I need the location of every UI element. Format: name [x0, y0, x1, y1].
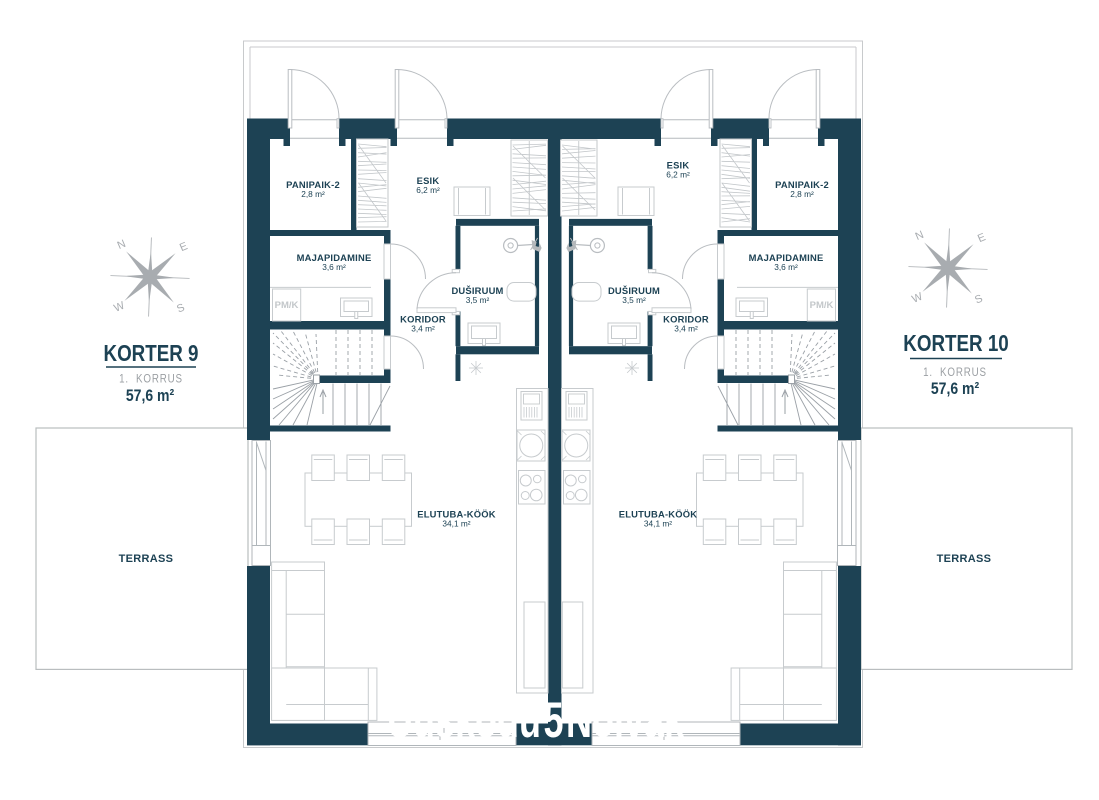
svg-text:2,8 m²: 2,8 m² — [790, 189, 814, 199]
svg-text:TERRASS: TERRASS — [937, 553, 992, 565]
svg-text:Uuskodu: Uuskodu — [387, 693, 541, 748]
svg-text:2,8 m²: 2,8 m² — [301, 189, 325, 199]
svg-text:3,4 m²: 3,4 m² — [674, 324, 698, 334]
svg-text:1. KORRUS: 1. KORRUS — [119, 373, 183, 386]
svg-text:57,6 m²: 57,6 m² — [126, 387, 174, 405]
svg-text:3,6 m²: 3,6 m² — [774, 262, 798, 272]
svg-text:34,1 m²: 34,1 m² — [644, 519, 672, 529]
svg-text:KORTER 9: KORTER 9 — [104, 340, 199, 367]
svg-text:3,6 m²: 3,6 m² — [322, 262, 346, 272]
svg-text:KORTER 10: KORTER 10 — [903, 330, 1008, 357]
svg-text:Nõlvak: Nõlvak — [566, 693, 685, 748]
svg-text:3,4 m²: 3,4 m² — [411, 324, 435, 334]
svg-text:6,2 m²: 6,2 m² — [666, 170, 690, 180]
svg-text:TERRASS: TERRASS — [119, 553, 174, 565]
svg-text:6,2 m²: 6,2 m² — [416, 185, 440, 195]
svg-text:57,6 m²: 57,6 m² — [931, 380, 979, 398]
svg-text:34,1 m²: 34,1 m² — [442, 519, 470, 529]
svg-text:5: 5 — [543, 693, 563, 748]
svg-text:3,5 m²: 3,5 m² — [622, 295, 646, 305]
svg-text:1. KORRUS: 1. KORRUS — [923, 366, 987, 379]
svg-text:PM/K: PM/K — [275, 300, 299, 311]
svg-text:3,5 m²: 3,5 m² — [466, 295, 490, 305]
svg-text:PM/K: PM/K — [810, 300, 834, 311]
